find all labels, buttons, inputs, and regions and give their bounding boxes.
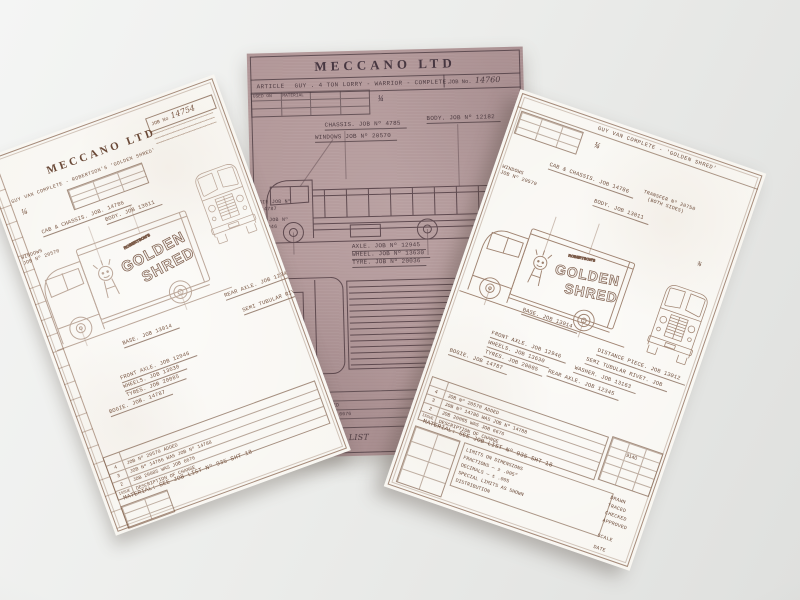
fuel-tank	[350, 224, 380, 237]
job-label: JOB No	[151, 116, 170, 128]
job-number: 14760	[475, 75, 501, 85]
used-on-table: USED ON MATERIAL	[251, 89, 371, 117]
windscreen-left	[664, 287, 685, 310]
headlamp-icon	[236, 194, 245, 203]
headlamp-icon	[659, 315, 668, 324]
scale-fraction: ¼	[378, 94, 384, 104]
job-number-box: JOB No. 14760	[443, 73, 520, 88]
stake-posts	[324, 186, 479, 218]
bumper	[647, 335, 693, 356]
job-label: JOB No.	[448, 78, 471, 86]
article-title: GUY . 4 TON LORRY - WARRIOR - COMPLETE.	[289, 78, 451, 89]
windscreen-right	[685, 294, 706, 317]
lorry-side-drawing	[253, 137, 506, 252]
headlamp-icon	[208, 204, 217, 213]
windscreen-right	[217, 166, 238, 190]
article-label: ARTICLE	[251, 83, 285, 91]
headlamp-icon	[687, 325, 696, 334]
bumper	[211, 214, 256, 235]
windscreen-left	[197, 173, 218, 197]
photo-of-three-meccano-drawings: MECCANO LTD ARTICLE GUY . 4 TON LORRY - …	[0, 0, 800, 600]
